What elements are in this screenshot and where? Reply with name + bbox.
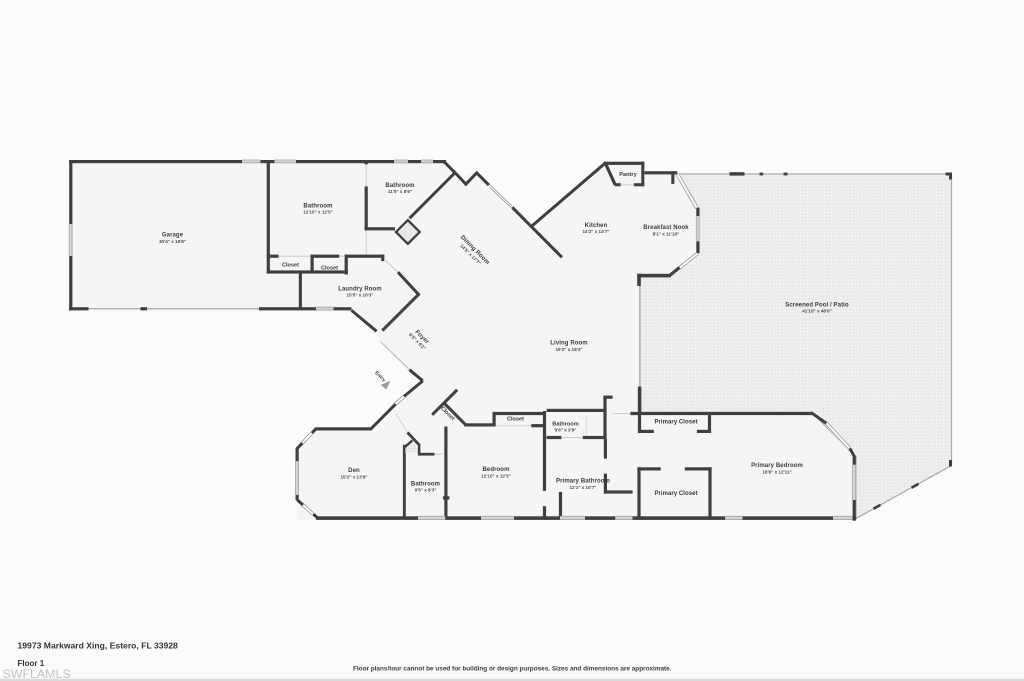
svg-text:Closet: Closet xyxy=(282,262,299,268)
svg-text:Breakfast Nook: Breakfast Nook xyxy=(643,225,689,231)
svg-text:12'1" x 10'7": 12'1" x 10'7" xyxy=(570,485,597,490)
svg-text:15'2" x 13'9": 15'2" x 13'9" xyxy=(341,474,368,479)
svg-text:Bedroom: Bedroom xyxy=(482,467,509,473)
svg-text:12'10" x 12'5": 12'10" x 12'5" xyxy=(303,210,333,215)
svg-text:Living Room: Living Room xyxy=(550,341,587,347)
svg-text:8'1" x 11'10": 8'1" x 11'10" xyxy=(653,232,680,237)
svg-text:11'5" x 8'6": 11'5" x 8'6" xyxy=(388,189,412,194)
svg-text:Closet: Closet xyxy=(507,417,524,423)
svg-text:Bathroom: Bathroom xyxy=(303,203,332,209)
svg-text:19'2" x 18'4": 19'2" x 18'4" xyxy=(556,347,583,352)
svg-text:Primary Bedroom: Primary Bedroom xyxy=(751,463,803,469)
svg-text:41'10" x 46'0": 41'10" x 46'0" xyxy=(802,309,832,314)
svg-text:Closet: Closet xyxy=(321,265,338,271)
svg-text:9'5" x 8'3": 9'5" x 8'3" xyxy=(415,488,437,493)
svg-text:Kitchen: Kitchen xyxy=(585,223,608,229)
svg-text:Garage: Garage xyxy=(162,233,184,239)
svg-text:14'2" x 14'7": 14'2" x 14'7" xyxy=(583,229,610,234)
svg-text:18'8" x 12'11": 18'8" x 12'11" xyxy=(762,470,791,475)
svg-text:Screened Pool / Patio: Screened Pool / Patio xyxy=(785,302,849,308)
svg-text:Bathroom: Bathroom xyxy=(385,183,414,189)
svg-text:Pantry: Pantry xyxy=(619,172,637,178)
svg-text:Laundry Room: Laundry Room xyxy=(338,286,382,292)
svg-text:30'4" x 19'8": 30'4" x 19'8" xyxy=(159,239,186,244)
svg-text:12'10" x 12'3": 12'10" x 12'3" xyxy=(481,473,511,478)
svg-text:19973 Markward Xing, Estero, F: 19973 Markward Xing, Estero, FL 33928 xyxy=(18,641,179,651)
svg-text:Den: Den xyxy=(348,468,360,474)
svg-text:Primary Bathroom: Primary Bathroom xyxy=(556,479,610,485)
svg-text:Primary Closet: Primary Closet xyxy=(654,418,697,425)
svg-text:Primary Closet: Primary Closet xyxy=(654,490,697,497)
svg-text:15'5" x 10'3": 15'5" x 10'3" xyxy=(347,293,374,298)
svg-text:Bathroom: Bathroom xyxy=(411,481,440,487)
svg-text:Floor plans/tour cannot be use: Floor plans/tour cannot be used for buil… xyxy=(353,666,672,673)
svg-text:9'6" x 3'9": 9'6" x 3'9" xyxy=(555,427,577,432)
